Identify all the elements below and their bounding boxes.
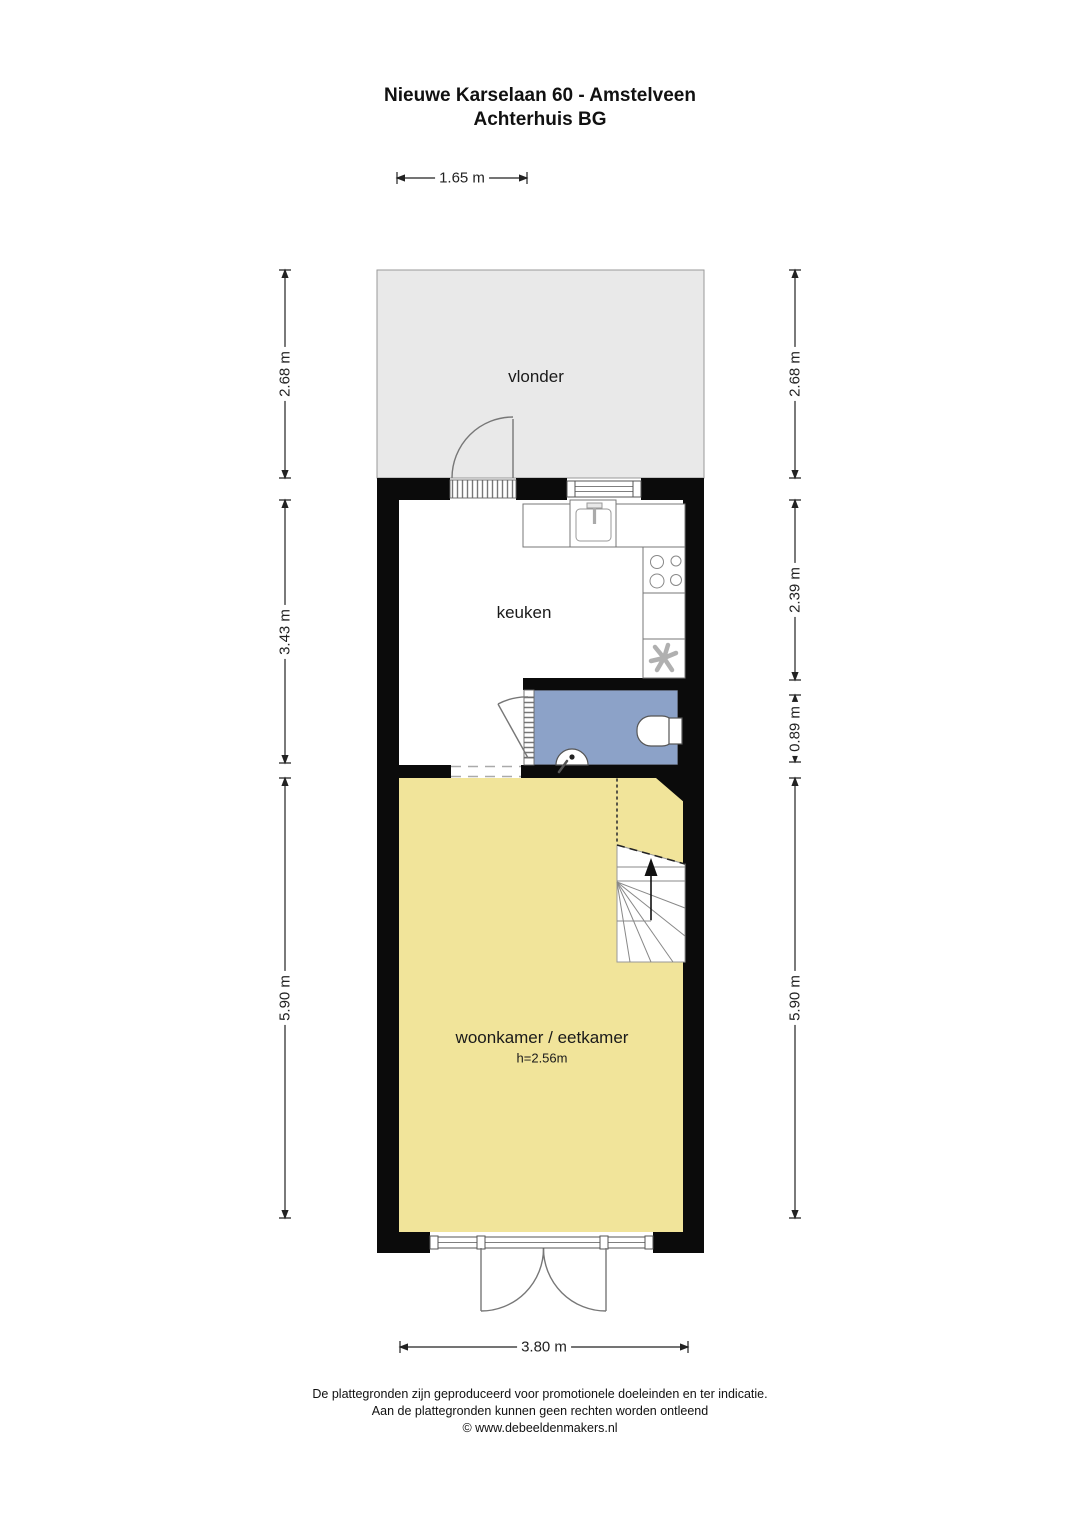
- dim-label-right-2: 2.39 m: [786, 563, 805, 617]
- open-passage: [451, 765, 521, 778]
- title-address: Nieuwe Karselaan 60 - Amstelveen: [0, 84, 1080, 108]
- room-label-vlonder: vlonder: [508, 367, 564, 387]
- disclaimer-line-2: Aan de plattegronden kunnen geen rechten…: [0, 1403, 1080, 1420]
- facade-doors-windows: [430, 1236, 653, 1311]
- counter-lower: [643, 593, 685, 639]
- dim-label-top: 1.65 m: [435, 169, 489, 188]
- floorplan-drawing: [0, 0, 1080, 1527]
- dim-label-left-1: 2.68 m: [276, 347, 295, 401]
- title-floor: Achterhuis BG: [0, 108, 1080, 132]
- bathroom-door-swing-arc: [498, 697, 528, 704]
- dim-label-right-3: 0.89 m: [786, 702, 805, 756]
- burner: [671, 575, 682, 586]
- room-height-note: h=2.56m: [517, 1051, 568, 1066]
- basin-drain: [569, 754, 574, 759]
- dim-label-right-1: 2.68 m: [786, 347, 805, 401]
- french-doors: [481, 1248, 606, 1311]
- burner: [671, 556, 681, 566]
- kitchen-window: [567, 481, 641, 497]
- disclaimer: De plattegronden zijn geproduceerd voor …: [0, 1386, 1080, 1437]
- toilet-tank: [669, 718, 682, 744]
- bathroom-door-leaf: [498, 704, 528, 758]
- stove: [643, 547, 685, 593]
- livingroom-floor: [399, 778, 685, 1232]
- dim-label-right-4: 5.90 m: [786, 971, 805, 1025]
- burner: [651, 556, 664, 569]
- backdoor-threshold: [450, 480, 516, 498]
- counter-right: [616, 504, 685, 547]
- floorplan-page: Nieuwe Karselaan 60 - Amstelveen Achterh…: [0, 0, 1080, 1527]
- dim-label-left-3: 5.90 m: [276, 971, 295, 1025]
- plan-title: Nieuwe Karselaan 60 - Amstelveen Achterh…: [0, 84, 1080, 132]
- bathroom-door-threshold: [524, 697, 534, 758]
- counter-left: [523, 504, 570, 547]
- room-label-keuken: keuken: [497, 603, 552, 623]
- burner: [650, 574, 664, 588]
- disclaimer-line-1: De plattegronden zijn geproduceerd voor …: [0, 1386, 1080, 1403]
- copyright-line: © www.debeeldenmakers.nl: [0, 1420, 1080, 1437]
- room-label-woonkamer: woonkamer / eetkamer: [456, 1028, 629, 1048]
- kitchen-fixtures: [523, 500, 685, 678]
- sink-faucet: [587, 503, 602, 508]
- dim-label-bottom: 3.80 m: [517, 1338, 571, 1357]
- dim-label-left-2: 3.43 m: [276, 605, 295, 659]
